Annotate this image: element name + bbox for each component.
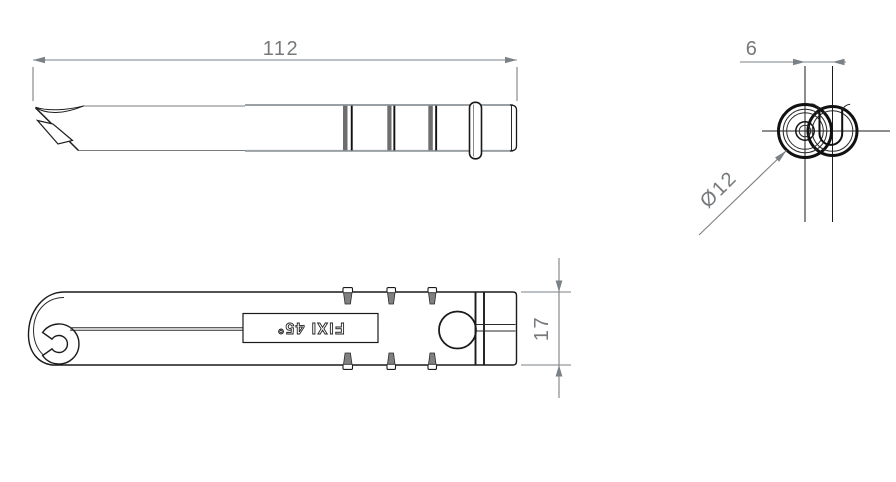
tip-barb — [38, 121, 73, 145]
arrowhead-right — [505, 57, 517, 63]
end-view: 6 Ø12 — [696, 38, 890, 235]
height-dimension-label: 17 — [531, 316, 553, 341]
spacing-dimension-label: 6 — [746, 38, 759, 60]
rib-bands — [343, 106, 437, 151]
bottom-side-view: FIXI 45° — [28, 258, 571, 398]
height-dimension: 17 — [521, 258, 571, 398]
diameter-dimension-label: Ø12 — [696, 167, 741, 212]
top-side-view: 112 — [33, 38, 517, 159]
collar-ring — [470, 102, 482, 159]
arrowhead-left — [33, 57, 45, 63]
chisel-tip — [36, 106, 85, 151]
drawing-canvas: 112 — [0, 0, 896, 482]
branding-plate: FIXI 45° — [243, 314, 378, 343]
arrowhead-left — [793, 59, 805, 65]
rear-end-edge — [510, 105, 517, 151]
spacing-dimension: 6 — [740, 38, 846, 65]
branding-label: FIXI 45° — [276, 319, 344, 336]
length-dimension-label: 112 — [263, 38, 299, 60]
diameter-dimension: Ø12 — [696, 151, 786, 236]
expansion-hole — [439, 312, 476, 349]
tip-scoop-edge — [36, 106, 85, 113]
arrowhead-right — [833, 59, 845, 65]
length-dimension: 112 — [33, 38, 517, 101]
arrowhead-bottom — [556, 365, 563, 377]
arrowhead-top — [556, 281, 563, 293]
anchor-body-top-view — [36, 102, 517, 159]
